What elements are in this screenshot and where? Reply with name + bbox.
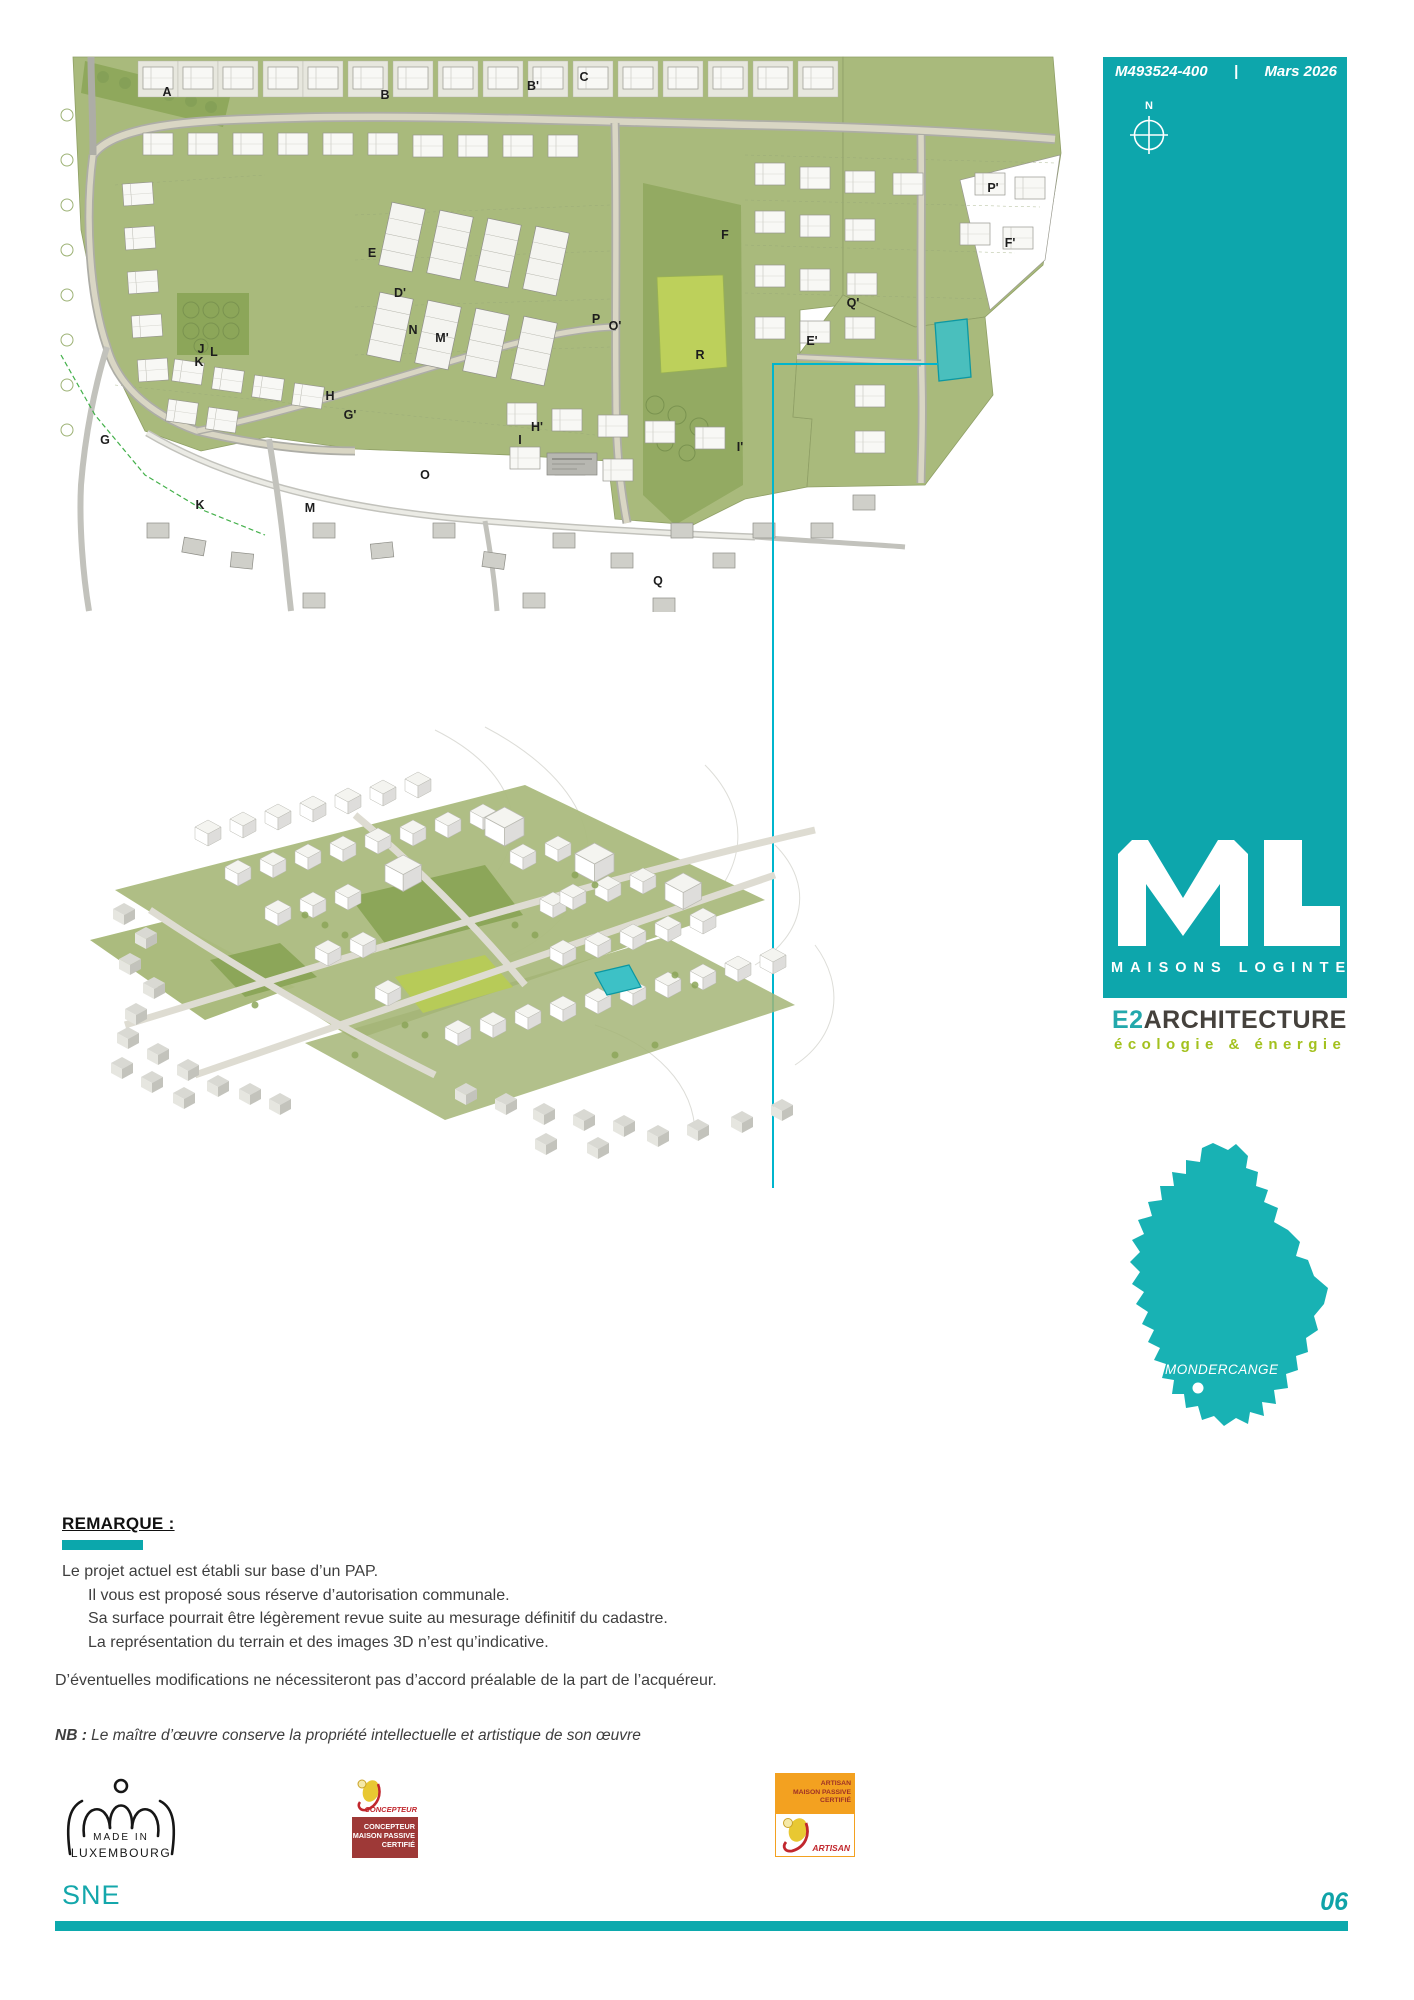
drawing-reference: M493524-400 [1115,63,1208,80]
footer-project-name: SNE [62,1880,121,1911]
concepteur-top-label: CONCEPTEUR [364,1805,417,1814]
remark-line-1: Le projet actuel est établi sur base d’u… [62,1560,962,1584]
3d-view-drawing [55,725,870,1195]
footer-bar [55,1921,1348,1931]
artisan-line-2: MAISON PASSIVE [775,1789,851,1798]
concepteur-logo-block: CONCEPTEUR MAISON PASSIVE CERTIFIÉ [352,1817,418,1858]
north-label: N [1127,101,1171,112]
nb-text: Le maître d’œuvre conserve la propriété … [91,1727,641,1744]
remark-paragraph: Le projet actuel est établi sur base d’u… [62,1560,962,1654]
maisons-loginter-logo [1118,832,1340,952]
north-compass-icon: N [1127,101,1171,159]
artisan-line-3: CERTIFIÉ [775,1797,851,1806]
e2-architecture-logo: E2ARCHITECTURE [1112,1006,1347,1035]
concepteur-maison-passive-logo: CONCEPTEUR CONCEPTEUR MAISON PASSIVE CER… [352,1777,418,1858]
highlighted-plot [935,319,971,381]
tulip-icon [779,1816,813,1854]
artisan-line-1: ARTISAN [775,1780,851,1789]
brand-name: MAISONS LOGINTER [1111,960,1339,976]
location-label: MONDERCANGE [1165,1362,1279,1377]
e2-name: ARCHITECTURE [1144,1006,1347,1034]
remark-title: REMARQUE : [62,1514,175,1534]
page-number: 06 [1290,1888,1348,1917]
concepteur-line-3: CERTIFIÉ [352,1840,415,1849]
luxembourg-map: MONDERCANGE [1118,1138,1333,1435]
plot-callout-line-horizontal [772,363,938,365]
e2-tagline: écologie & énergie [1114,1036,1346,1053]
artisan-bottom-label: ARTISAN [812,1843,850,1853]
artisan-logo-bottom: ARTISAN [775,1813,855,1857]
e2-prefix: E2 [1112,1006,1144,1034]
remark-title-underline-bar [62,1540,143,1550]
artisan-maison-passive-logo: ARTISAN MAISON PASSIVE CERTIFIÉ ARTISAN [775,1773,855,1857]
concepteur-line-2: MAISON PASSIVE [352,1831,415,1840]
luxembourg-silhouette: MONDERCANGE [1118,1138,1333,1430]
concepteur-logo-top: CONCEPTEUR [352,1777,418,1817]
drawing-header: M493524-400 | Mars 2026 [1115,63,1337,80]
remark-line-2: Il vous est proposé sous réserve d’autor… [62,1584,962,1608]
made-in-luxembourg-logo: MADE IN LUXEMBOURG [58,1776,184,1869]
remark-line-4: La représentation du terrain et des imag… [62,1631,962,1655]
remark-line-3: Sa surface pourrait être légèrement revu… [62,1607,962,1631]
remark-nb: NB : Le maître d’œuvre conserve la propr… [55,1727,1005,1745]
drawing-date: Mars 2026 [1264,63,1337,80]
header-separator: | [1234,63,1238,80]
made-in-line2: LUXEMBOURG [71,1846,171,1860]
made-in-line1: MADE IN [93,1832,149,1843]
3d-perspective-view [55,725,870,1195]
compass-rose [1127,112,1171,158]
site-plan-map [55,55,1085,612]
concepteur-line-1: CONCEPTEUR [352,1822,415,1831]
remark-paragraph-2: D’éventuelles modifications ne nécessite… [55,1672,1005,1690]
artisan-logo-top: ARTISAN MAISON PASSIVE CERTIFIÉ [775,1773,855,1813]
crown-icon: MADE IN LUXEMBOURG [58,1776,184,1864]
nb-label: NB : [55,1727,87,1744]
sidebar: M493524-400 | Mars 2026 N MAISONS LOGINT… [1103,57,1347,998]
location-dot [1193,1383,1204,1394]
site-plan-drawing [55,55,1085,612]
